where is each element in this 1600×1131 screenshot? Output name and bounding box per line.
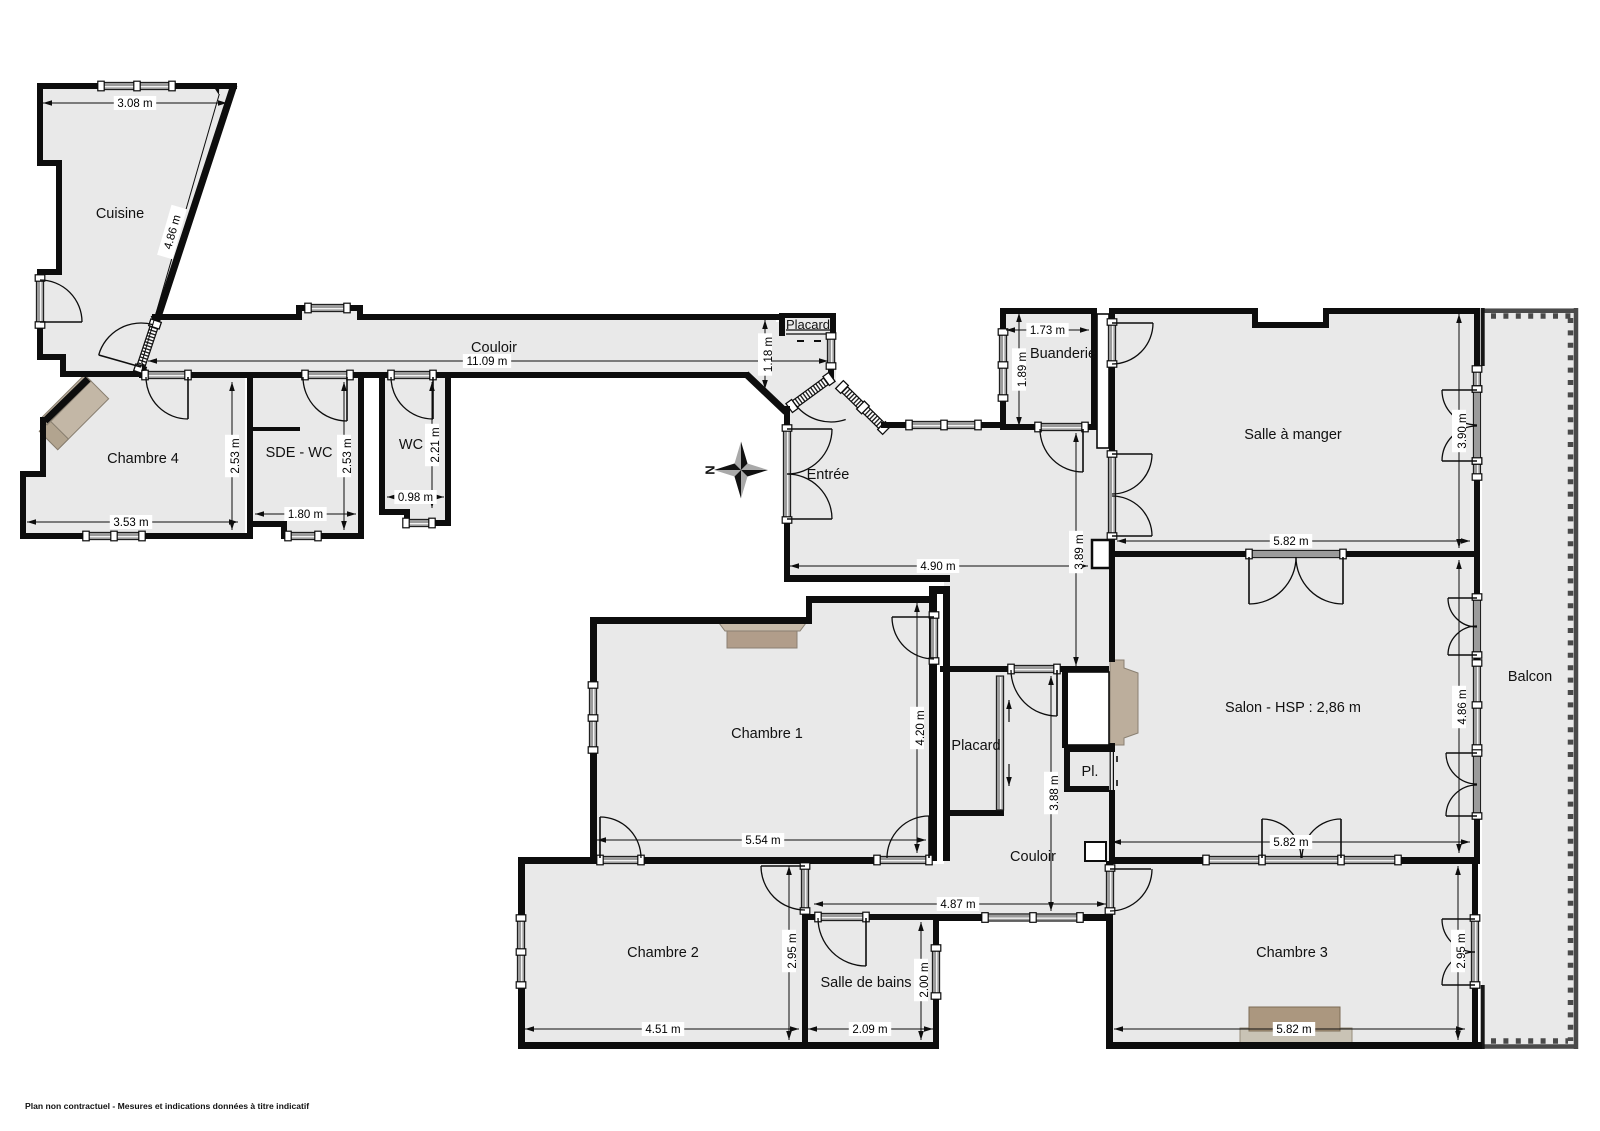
svg-text:1.89 m: 1.89 m: [1017, 352, 1029, 387]
svg-text:3.53 m: 3.53 m: [113, 517, 148, 529]
svg-text:2.53 m: 2.53 m: [230, 438, 242, 473]
svg-text:5.54 m: 5.54 m: [745, 835, 780, 847]
svg-text:1.18 m: 1.18 m: [763, 337, 775, 372]
svg-text:2.95 m: 2.95 m: [1456, 933, 1468, 968]
svg-text:1.73 m: 1.73 m: [1030, 325, 1065, 337]
svg-text:3.89 m: 3.89 m: [1074, 534, 1086, 569]
svg-text:2.21 m: 2.21 m: [430, 427, 442, 462]
svg-text:SDE - WC: SDE - WC: [266, 445, 333, 461]
svg-text:1.80 m: 1.80 m: [288, 509, 323, 521]
svg-text:Salle à manger: Salle à manger: [1244, 427, 1342, 443]
svg-text:Couloir: Couloir: [1010, 849, 1056, 865]
svg-text:5.82 m: 5.82 m: [1273, 536, 1308, 548]
svg-text:Chambre 1: Chambre 1: [731, 726, 803, 742]
svg-text:WC: WC: [399, 437, 423, 453]
svg-text:4.90 m: 4.90 m: [920, 561, 955, 573]
svg-text:Entrée: Entrée: [807, 467, 850, 483]
svg-text:4.20 m: 4.20 m: [915, 710, 927, 745]
svg-text:Chambre 3: Chambre 3: [1256, 945, 1328, 961]
svg-text:Placard: Placard: [786, 317, 830, 332]
svg-text:4.51 m: 4.51 m: [645, 1024, 680, 1036]
svg-text:4.86 m: 4.86 m: [1457, 689, 1469, 724]
svg-text:2.09 m: 2.09 m: [852, 1024, 887, 1036]
svg-text:4.87 m: 4.87 m: [940, 899, 975, 911]
svg-text:3.88 m: 3.88 m: [1049, 775, 1061, 810]
svg-text:5.82 m: 5.82 m: [1276, 1024, 1311, 1036]
svg-text:2.95 m: 2.95 m: [787, 933, 799, 968]
svg-text:2.00 m: 2.00 m: [919, 962, 931, 997]
svg-text:Balcon: Balcon: [1508, 669, 1552, 685]
svg-text:Salon - HSP : 2,86 m: Salon - HSP : 2,86 m: [1225, 700, 1361, 716]
svg-text:Cuisine: Cuisine: [96, 206, 144, 222]
svg-text:3.08 m: 3.08 m: [117, 98, 152, 110]
svg-text:Salle de bains: Salle de bains: [820, 975, 911, 991]
svg-text:5.82 m: 5.82 m: [1273, 837, 1308, 849]
svg-text:11.09 m: 11.09 m: [467, 356, 508, 368]
svg-text:Chambre 4: Chambre 4: [107, 451, 179, 467]
svg-text:2.53 m: 2.53 m: [342, 438, 354, 473]
svg-text:Couloir: Couloir: [471, 340, 517, 356]
svg-text:Pl.: Pl.: [1082, 764, 1099, 780]
svg-text:Buanderie: Buanderie: [1030, 346, 1096, 362]
svg-text:Chambre 2: Chambre 2: [627, 945, 699, 961]
svg-text:Plan non contractuel - Mesures: Plan non contractuel - Mesures et indica…: [25, 1101, 309, 1111]
svg-text:0.98 m: 0.98 m: [398, 492, 433, 504]
svg-text:N: N: [703, 465, 718, 474]
svg-text:Placard: Placard: [951, 738, 1000, 754]
svg-text:3.90 m: 3.90 m: [1457, 413, 1469, 448]
